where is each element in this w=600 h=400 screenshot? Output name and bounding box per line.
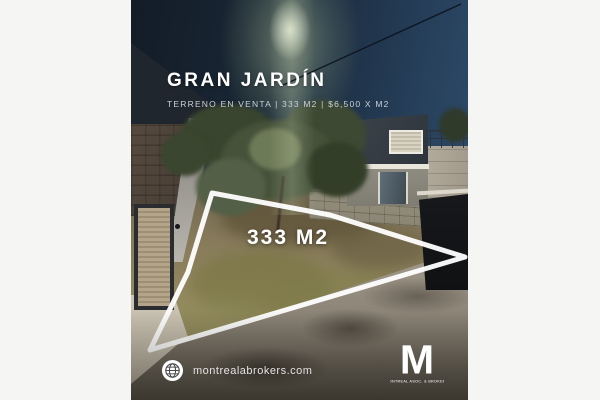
flyer-canvas: { "flyer": { "title": "GRAN JARDÍN", "su…	[0, 0, 600, 400]
logo-letter: M	[400, 338, 434, 383]
listing-header: GRAN JARDÍN TERRENO EN VENTA | 333 M2 | …	[167, 70, 390, 109]
lot-area-label: 333 M2	[247, 226, 329, 250]
logo-tagline: MONTREAL ASOC. & BROKERS	[390, 380, 444, 384]
website-url: montrealabrokers.com	[193, 365, 312, 377]
listing-title: GRAN JARDÍN	[167, 70, 390, 92]
globe-icon	[161, 359, 184, 382]
listing-subtitle: TERRENO EN VENTA | 333 M2 | $6,500 X M2	[167, 99, 390, 109]
property-photo: GRAN JARDÍN TERRENO EN VENTA | 333 M2 | …	[131, 0, 468, 400]
website-row: montrealabrokers.com	[161, 359, 312, 382]
broker-logo: M MONTREAL ASOC. & BROKERS	[390, 338, 444, 388]
m-letter-logo-icon: M MONTREAL ASOC. & BROKERS	[390, 338, 444, 388]
